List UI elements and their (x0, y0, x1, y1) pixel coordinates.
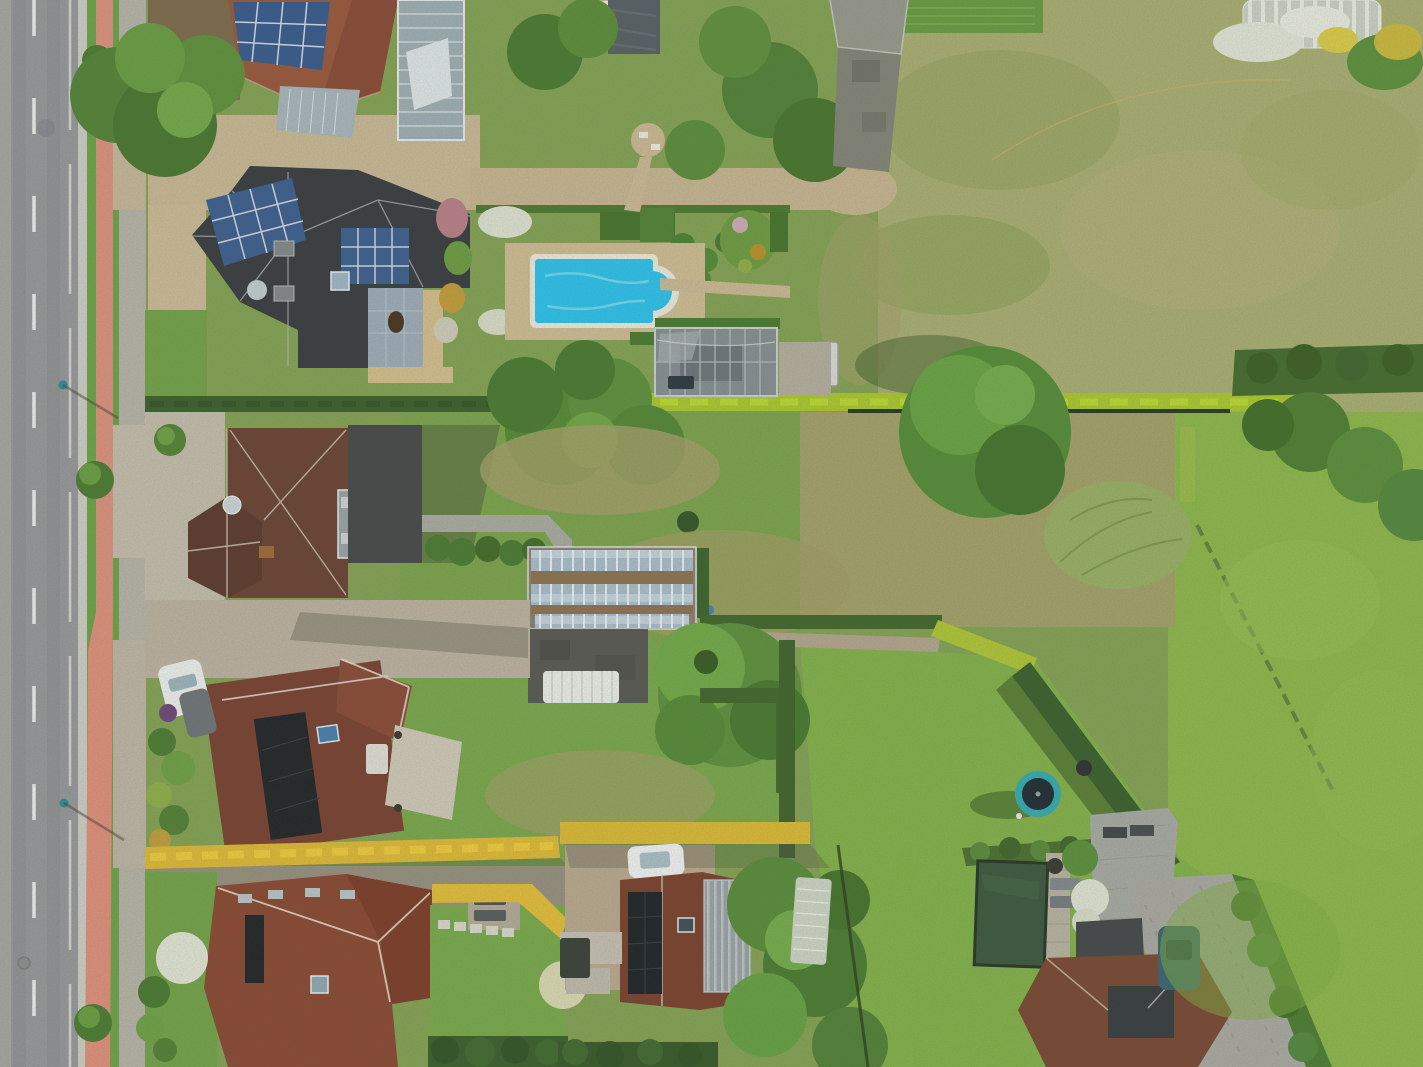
aerial-photograph (0, 0, 1423, 1067)
scene-layers (0, 0, 1423, 1067)
aerial-photo-frame: Aerial top-down view of suburban houses … (0, 0, 1423, 1067)
photo-grain (0, 0, 1423, 1067)
